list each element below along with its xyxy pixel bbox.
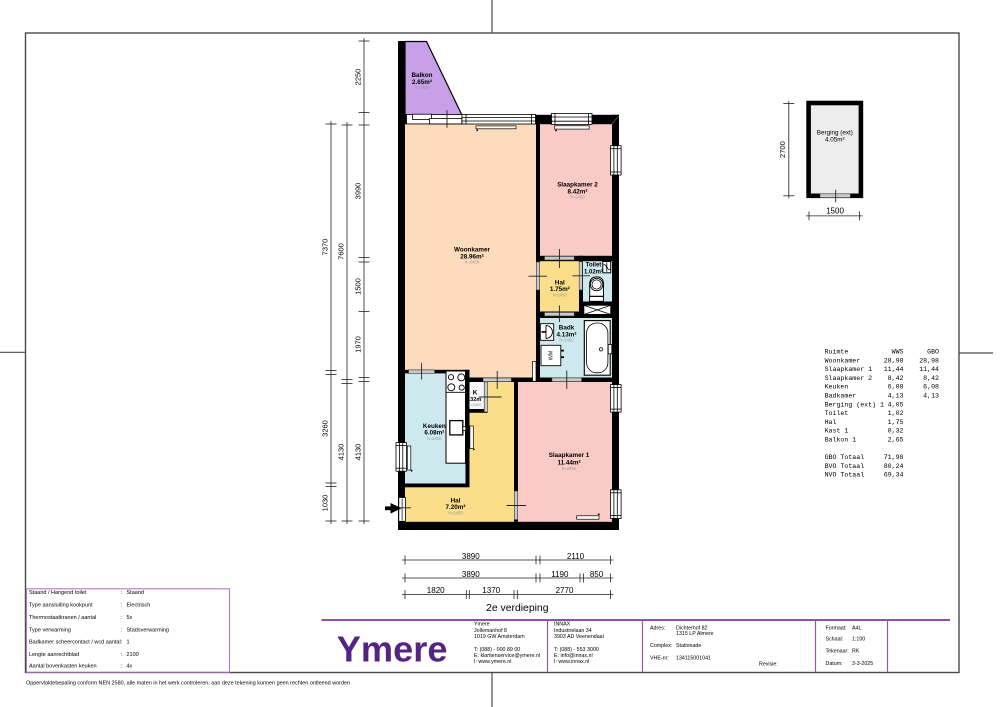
svg-text:Woonkamer: Woonkamer: [825, 357, 861, 364]
svg-text:1.02m²: 1.02m²: [584, 269, 603, 276]
svg-text:RK: RK: [852, 649, 860, 655]
svg-text:GBO: GBO: [927, 349, 939, 356]
svg-text:7600: 7600: [337, 243, 346, 260]
svg-text:1:100: 1:100: [852, 636, 865, 642]
svg-text:1500: 1500: [354, 278, 363, 295]
svg-text:Badkamer: Badkamer: [825, 393, 857, 400]
svg-text:Ruimte: Ruimte: [825, 349, 849, 356]
svg-text:Aantal bovenkasten keuken: Aantal bovenkasten keuken: [29, 664, 97, 670]
svg-text:VHE-nr:: VHE-nr:: [650, 655, 669, 661]
svg-text:Revisie:: Revisie:: [759, 661, 778, 667]
svg-text:28,98: 28,98: [919, 357, 939, 364]
svg-text:4130: 4130: [337, 444, 346, 461]
svg-text:A4L: A4L: [852, 625, 861, 631]
svg-text:h=2450: h=2450: [553, 293, 568, 298]
svg-text:GBO Totaal: GBO Totaal: [825, 454, 865, 461]
svg-text:2110: 2110: [567, 552, 585, 561]
svg-text:3-3-2025: 3-3-2025: [852, 661, 873, 667]
svg-text:Hal: Hal: [825, 419, 837, 426]
svg-text:I: www.innax.nl: I: www.innax.nl: [554, 659, 589, 665]
svg-text:Tekenaar:: Tekenaar:: [826, 649, 849, 655]
svg-text:BVO Totaal: BVO Totaal: [825, 463, 865, 470]
svg-text:4x: 4x: [127, 664, 133, 670]
svg-text:1190: 1190: [551, 570, 569, 579]
svg-text:Stadsverwarming: Stadsverwarming: [127, 627, 170, 633]
svg-text:6,08: 6,08: [923, 384, 939, 391]
svg-text:Kast 1: Kast 1: [825, 428, 849, 435]
svg-text:2e verdieping: 2e verdieping: [486, 603, 549, 614]
svg-text:7370: 7370: [321, 239, 330, 256]
svg-text:Datum:: Datum:: [826, 661, 843, 667]
svg-text:WWS: WWS: [892, 349, 904, 356]
svg-text:2,65: 2,65: [888, 437, 904, 444]
svg-text:1: 1: [127, 640, 130, 646]
svg-text:Keuken: Keuken: [825, 384, 849, 391]
svg-text:INNAX: INNAX: [554, 622, 571, 628]
svg-text:1,75: 1,75: [888, 419, 904, 426]
svg-text:Balkon 1: Balkon 1: [825, 437, 857, 444]
svg-text:11,44: 11,44: [919, 366, 939, 373]
svg-text:Oppervlaktebepaling conform NE: Oppervlaktebepaling conform NEN 2580, al…: [26, 681, 350, 687]
svg-text:Toilet: Toilet: [825, 410, 849, 417]
svg-text:2700: 2700: [778, 141, 787, 158]
svg-text:4,05: 4,05: [888, 401, 904, 408]
svg-text:Slaapkamer 2: Slaapkamer 2: [825, 375, 873, 382]
svg-text:69,34: 69,34: [884, 472, 904, 479]
svg-text:Schaal:: Schaal:: [826, 636, 844, 642]
svg-text:E: klantenservice@ymere.nl: E: klantenservice@ymere.nl: [474, 653, 540, 659]
svg-text:T: (088) - 553 3000: T: (088) - 553 3000: [554, 647, 599, 653]
svg-text:h=2450: h=2450: [570, 195, 585, 200]
svg-text:Ymere: Ymere: [474, 622, 490, 628]
svg-text:h=2450: h=2450: [415, 85, 430, 90]
svg-text:Slaapkamer 1: Slaapkamer 1: [549, 452, 590, 459]
svg-text:0,32: 0,32: [888, 428, 904, 435]
svg-text:1315 LP Almere: 1315 LP Almere: [676, 631, 714, 637]
svg-text:1019 GW Amsterdam: 1019 GW Amsterdam: [474, 634, 525, 640]
svg-text:NVO Totaal: NVO Totaal: [825, 472, 865, 479]
svg-text:Industrielaan 34: Industrielaan 34: [554, 628, 592, 634]
svg-text:Badkamer scheercontact / wcd a: Badkamer scheercontact / wcd aantal: [29, 640, 121, 646]
svg-text:80,24: 80,24: [884, 463, 904, 470]
svg-text:3890: 3890: [462, 570, 480, 579]
svg-text:Type verwarming: Type verwarming: [29, 627, 71, 633]
svg-text:WM: WM: [548, 350, 554, 360]
svg-text:K: K: [473, 390, 478, 397]
svg-text:4,13: 4,13: [888, 393, 904, 400]
svg-text:Slaapkamer 1: Slaapkamer 1: [825, 366, 873, 373]
svg-text:Jollemanhof 8: Jollemanhof 8: [474, 628, 507, 634]
svg-text:h=2450: h=2450: [448, 511, 463, 516]
svg-text:4130: 4130: [354, 444, 363, 461]
svg-text:Thermostaatkranen / aantal: Thermostaatkranen / aantal: [29, 615, 96, 621]
svg-text:1370: 1370: [482, 586, 500, 595]
svg-text:E: info@innax.nl: E: info@innax.nl: [554, 653, 593, 659]
svg-text:h=2450: h=2450: [562, 466, 577, 471]
svg-text:h=2450: h=2450: [469, 403, 482, 407]
svg-text:2250: 2250: [354, 69, 363, 86]
svg-text:3890: 3890: [462, 552, 480, 561]
svg-text:Toilet: Toilet: [586, 263, 602, 269]
svg-text:8,42: 8,42: [888, 375, 904, 382]
svg-text:28,98: 28,98: [884, 357, 904, 364]
svg-text:6,08: 6,08: [888, 384, 904, 391]
svg-text:T: (088) - 000 89 00: T: (088) - 000 89 00: [474, 647, 520, 653]
svg-text:Ymere: Ymere: [337, 628, 448, 669]
svg-text:134115001041: 134115001041: [676, 655, 711, 661]
svg-text:1820: 1820: [427, 586, 445, 595]
svg-text:h=2450: h=2450: [465, 260, 480, 265]
svg-text:1970: 1970: [354, 336, 363, 353]
svg-text:Stationade: Stationade: [676, 643, 701, 649]
svg-text:2770: 2770: [556, 586, 574, 595]
svg-text:Electrisch: Electrisch: [127, 603, 151, 609]
svg-text:Berging (ext) 1: Berging (ext) 1: [825, 401, 884, 408]
svg-text:Adres:: Adres:: [650, 625, 665, 631]
svg-text:3260: 3260: [321, 420, 330, 437]
svg-text:8,42: 8,42: [923, 375, 939, 382]
svg-text:Formaat:: Formaat:: [826, 625, 847, 631]
svg-text:Lengte aanrechtblad: Lengte aanrechtblad: [29, 652, 79, 658]
svg-text:1030: 1030: [321, 495, 330, 512]
svg-text:Complex:: Complex:: [650, 643, 672, 649]
svg-text:1,02: 1,02: [888, 410, 904, 417]
svg-text:4,13: 4,13: [923, 393, 939, 400]
svg-text:1500: 1500: [826, 206, 844, 215]
svg-text:3903 AD Veenendaal: 3903 AD Veenendaal: [554, 634, 604, 640]
svg-text:Staand: Staand: [127, 590, 144, 596]
svg-text:2100: 2100: [127, 652, 139, 658]
svg-text:3990: 3990: [354, 183, 363, 200]
svg-text:h=2450: h=2450: [559, 338, 574, 343]
svg-text:4.05m²: 4.05m²: [825, 136, 845, 143]
svg-text:850: 850: [590, 570, 604, 579]
svg-text:Staand / Hangend toilet: Staand / Hangend toilet: [29, 590, 87, 596]
svg-text:h=2450: h=2450: [427, 436, 442, 441]
svg-text:I: www.ymere.nl: I: www.ymere.nl: [474, 659, 511, 665]
svg-text:Type aansluiting kookpunt: Type aansluiting kookpunt: [29, 603, 93, 609]
svg-text:5x: 5x: [127, 615, 133, 621]
svg-text:11,44: 11,44: [884, 366, 904, 373]
svg-text:71,98: 71,98: [884, 454, 904, 461]
